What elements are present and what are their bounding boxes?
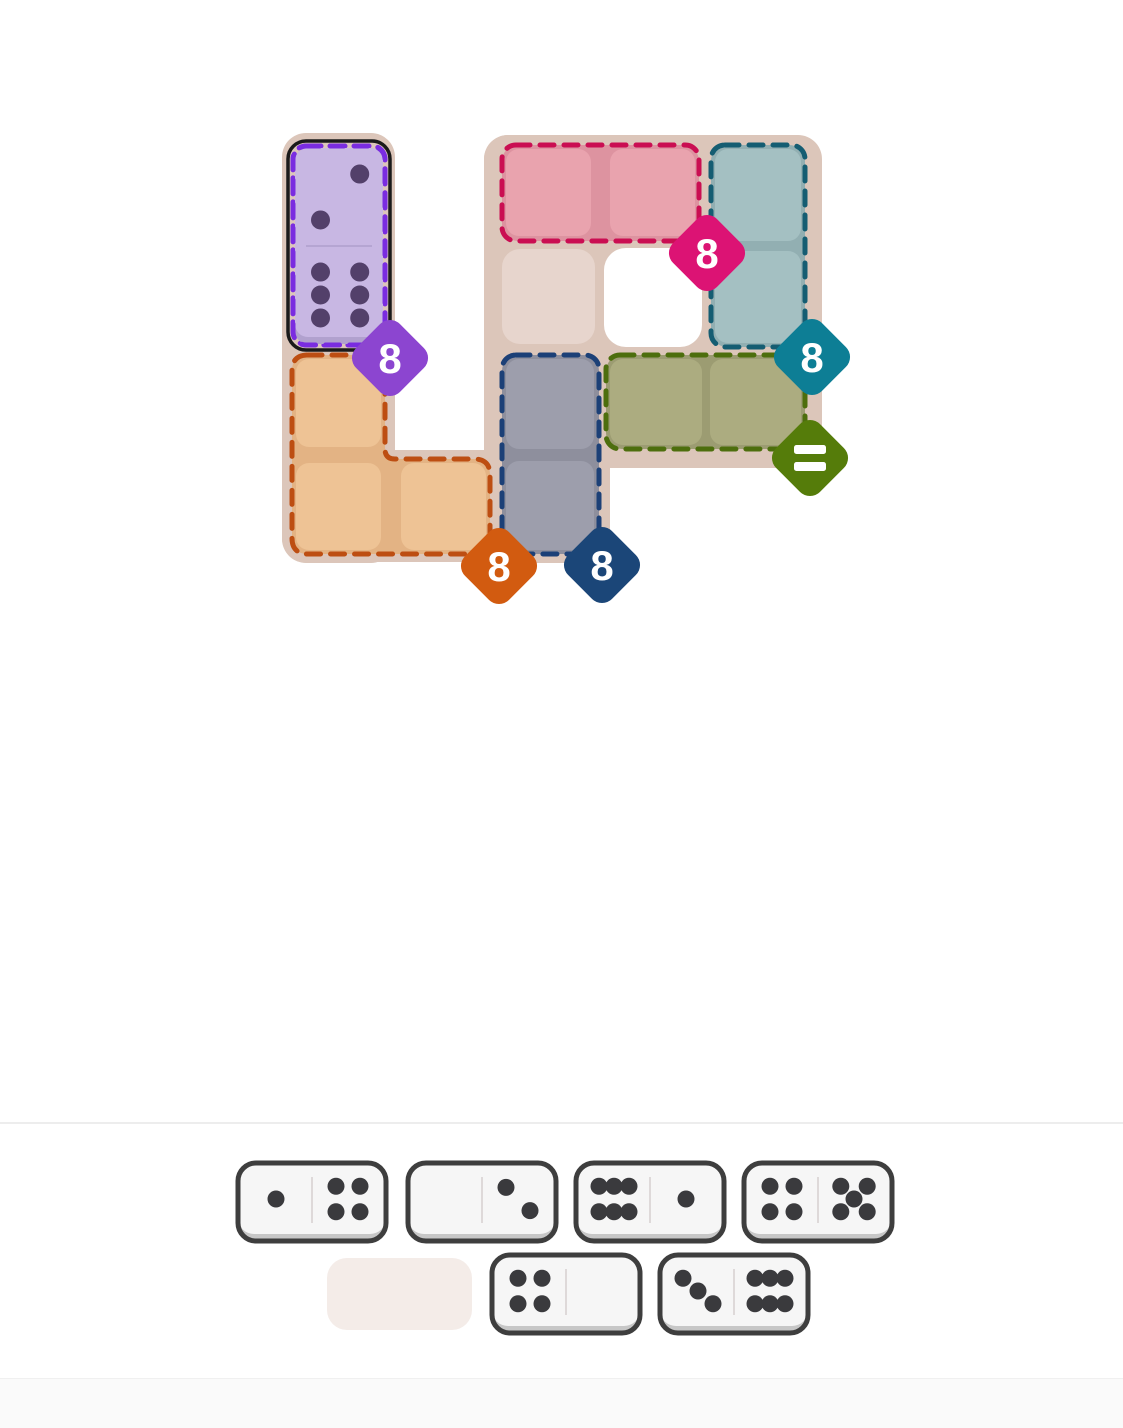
domino-tray	[238, 1163, 892, 1333]
pip	[591, 1203, 608, 1220]
pip	[747, 1270, 764, 1287]
tray-domino-4-5[interactable]	[744, 1163, 892, 1241]
pip	[690, 1283, 707, 1300]
empty-cell	[502, 249, 595, 344]
footer-bar	[0, 1378, 1123, 1428]
badge-label: 8	[800, 334, 823, 381]
pip	[832, 1178, 849, 1195]
pip	[606, 1203, 623, 1220]
pip	[534, 1270, 551, 1287]
pip	[311, 210, 330, 229]
region-cell[interactable]	[610, 359, 702, 445]
pip	[762, 1270, 779, 1287]
region-navy[interactable]	[502, 355, 599, 554]
region-cell[interactable]	[296, 463, 381, 550]
region-pink[interactable]	[502, 145, 699, 241]
tray-domino-0-2[interactable]	[408, 1163, 556, 1241]
pip	[621, 1178, 638, 1195]
equals-bar	[794, 445, 826, 454]
pip	[510, 1270, 527, 1287]
region-olive[interactable]	[606, 355, 805, 449]
pip	[777, 1295, 794, 1312]
pip	[328, 1203, 345, 1220]
pip	[522, 1202, 539, 1219]
pip	[675, 1270, 692, 1287]
pip	[311, 286, 330, 305]
equals-bar	[794, 462, 826, 471]
pip	[705, 1295, 722, 1312]
pip	[747, 1295, 764, 1312]
region-cell[interactable]	[506, 359, 594, 449]
badge-label: 8	[487, 543, 510, 590]
region-cell[interactable]	[610, 149, 695, 236]
pip	[786, 1203, 803, 1220]
domino-face	[295, 148, 383, 337]
region-cell[interactable]	[506, 149, 591, 236]
pip	[268, 1191, 285, 1208]
pip	[606, 1178, 623, 1195]
game-canvas: 88888	[0, 0, 1123, 1428]
pip	[311, 308, 330, 327]
tray-domino-3-6[interactable]	[660, 1255, 808, 1333]
pip	[777, 1270, 794, 1287]
pip	[832, 1203, 849, 1220]
placed-domino-2-6[interactable]	[288, 141, 390, 350]
region-cell[interactable]	[506, 461, 594, 550]
tray-empty-slot	[327, 1258, 472, 1330]
pip	[350, 286, 369, 305]
pip	[859, 1203, 876, 1220]
pip	[678, 1191, 695, 1208]
pip	[846, 1191, 863, 1208]
badge-label: 8	[695, 230, 718, 277]
pip	[621, 1203, 638, 1220]
badge-label: 8	[590, 542, 613, 589]
pip	[350, 308, 369, 327]
pip	[591, 1178, 608, 1195]
pip	[350, 165, 369, 184]
pip	[311, 263, 330, 282]
pip	[352, 1178, 369, 1195]
pip	[762, 1295, 779, 1312]
pip	[350, 263, 369, 282]
region-cell[interactable]	[715, 149, 801, 241]
tray-divider	[0, 1122, 1123, 1124]
pip	[534, 1295, 551, 1312]
pip	[762, 1178, 779, 1195]
pip	[786, 1178, 803, 1195]
pip	[859, 1178, 876, 1195]
pip	[762, 1203, 779, 1220]
app-root: 88888	[0, 0, 1123, 1428]
pip	[328, 1178, 345, 1195]
tray-domino-6-1[interactable]	[576, 1163, 724, 1241]
badge-label: 8	[378, 335, 401, 382]
pip	[510, 1295, 527, 1312]
region-cell[interactable]	[401, 463, 486, 550]
tray-domino-4-0[interactable]	[492, 1255, 640, 1333]
pip	[352, 1203, 369, 1220]
pip	[498, 1179, 515, 1196]
tray-domino-1-4[interactable]	[238, 1163, 386, 1241]
